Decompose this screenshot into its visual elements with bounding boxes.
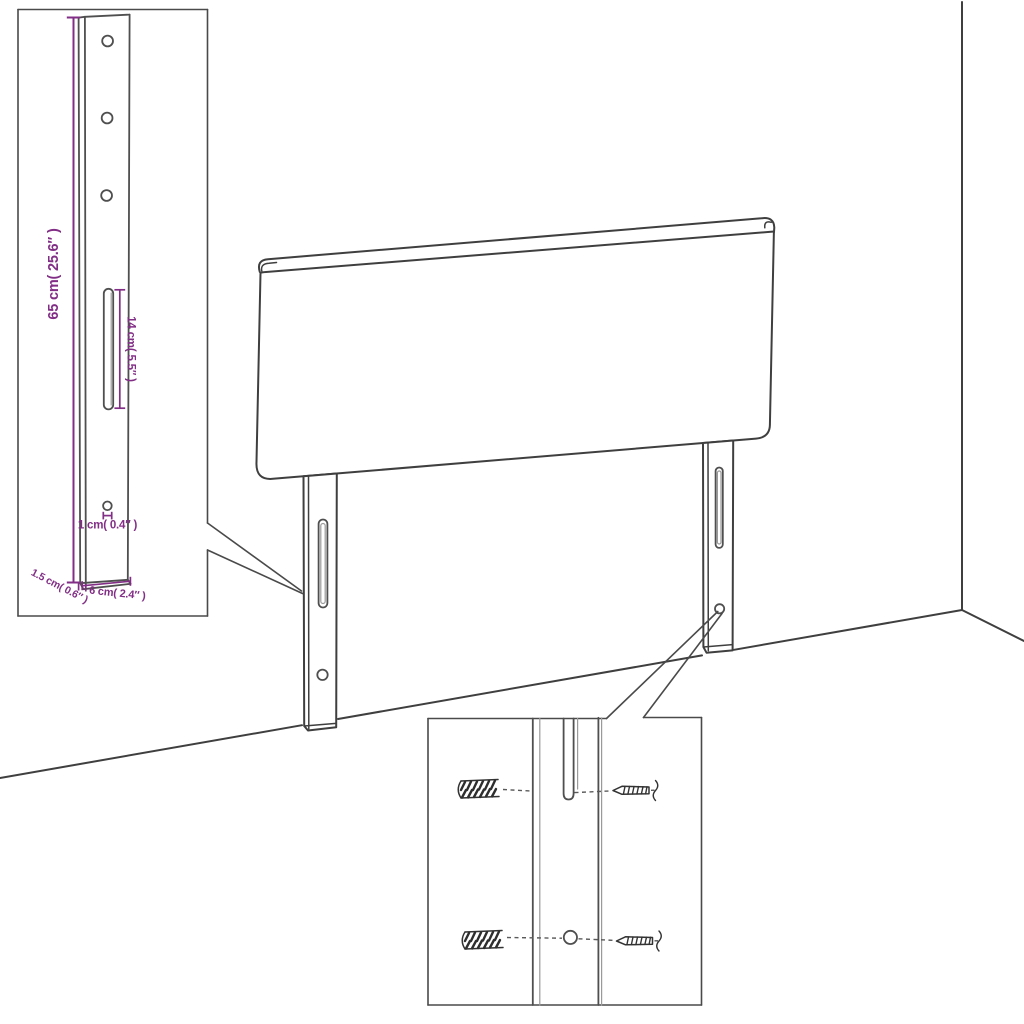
label-hole-diameter: 1 cm( 0.4″ ) <box>78 520 138 532</box>
dashed-line-slot-to-screw <box>575 791 612 793</box>
dimension-lines <box>67 18 131 592</box>
headboard-panel <box>256 232 773 479</box>
floor-line-left-3 <box>734 610 962 650</box>
label-slot-length: 14 cm( 5.5″ ) <box>125 316 137 382</box>
hw-leader-line-right <box>644 614 723 718</box>
inset-leg-leader-lines <box>208 523 303 594</box>
hw-leg-slot <box>564 719 574 800</box>
inset-hardware-border <box>428 718 702 1006</box>
inset-leg-hole-3 <box>101 190 112 201</box>
inset-leg-drawing <box>79 15 131 590</box>
inset-leg-small-hole <box>103 502 112 511</box>
inset-leg-right-edge <box>128 15 130 580</box>
label-leg-height: 65 cm( 25.6″ ) <box>46 228 62 320</box>
assembly-diagram: 65 cm( 25.6″ ) 14 cm( 5.5″ ) 1 cm( 0.4″ … <box>0 0 1024 1024</box>
inset-leg-hole-1 <box>102 36 113 47</box>
inset-mounting-hardware <box>428 612 722 1006</box>
panel-band-left-curl <box>262 263 277 272</box>
floor-line-right <box>962 610 1024 642</box>
floor-line-left-2 <box>338 655 702 719</box>
dashed-line-hole-to-screw <box>579 939 616 941</box>
dimension-slot-14cm <box>114 290 125 408</box>
inset-leg-side-right-line <box>85 17 86 585</box>
alignment-dashed-lines <box>503 790 658 941</box>
inset-hardware-leg-section <box>533 718 602 1005</box>
diagram-canvas: 65 cm( 25.6″ ) 14 cm( 5.5″ ) 1 cm( 0.4″ … <box>0 0 1024 1024</box>
wall-anchor-icon <box>458 780 499 799</box>
panel-band-right-curl <box>765 222 772 228</box>
wall-anchor-icon <box>462 931 503 950</box>
dashed-line-anchor-to-hole <box>507 938 562 939</box>
inset-leg-side-left-line <box>79 18 81 584</box>
label-leg-width: 6 cm( 2.4″ ) <box>89 585 147 603</box>
inset-leg-hole-2 <box>102 113 113 124</box>
dimension-hole-1cm <box>103 512 111 520</box>
hw-leg-hole <box>564 931 577 944</box>
inset-leg-top-edge <box>79 15 130 18</box>
floor-line-left-1 <box>0 725 302 778</box>
hw-leader-line-left <box>607 612 718 719</box>
dashed-line-anchor-to-slot <box>503 790 531 792</box>
headboard-leg-left <box>304 474 337 731</box>
headboard <box>256 218 774 730</box>
